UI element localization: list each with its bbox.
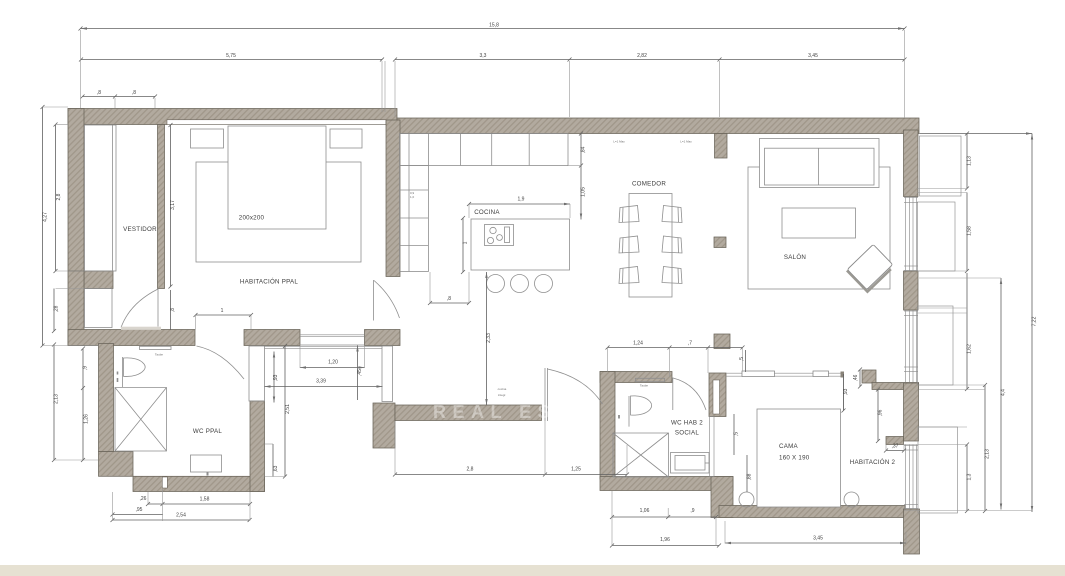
svg-text:2,82: 2,82 xyxy=(637,53,647,59)
svg-text:1,9: 1,9 xyxy=(518,197,525,203)
svg-text:2,8: 2,8 xyxy=(467,467,474,473)
svg-text:cocina: cocina xyxy=(498,387,507,391)
svg-text:,5: ,5 xyxy=(734,432,740,436)
svg-text:2,33: 2,33 xyxy=(486,333,492,343)
svg-text:,84: ,84 xyxy=(581,146,587,153)
svg-text:2,13: 2,13 xyxy=(54,394,60,404)
svg-text:L=1 Max: L=1 Max xyxy=(680,140,692,144)
svg-text:HABITACIÓN PPAL: HABITACIÓN PPAL xyxy=(240,279,298,286)
svg-text:7,22: 7,22 xyxy=(1032,316,1038,326)
svg-text:2,8: 2,8 xyxy=(56,193,62,200)
svg-text:4,27: 4,27 xyxy=(43,212,49,222)
svg-text:Taube: Taube xyxy=(155,353,164,357)
svg-text:,63: ,63 xyxy=(273,465,279,472)
svg-text:1,20: 1,20 xyxy=(328,360,338,366)
svg-text:VESTIDOR: VESTIDOR xyxy=(123,226,157,233)
svg-text:,26: ,26 xyxy=(140,496,147,502)
svg-text:,8: ,8 xyxy=(170,308,176,312)
svg-text:15,8: 15,8 xyxy=(489,23,499,29)
svg-text:,8: ,8 xyxy=(97,90,101,96)
svg-text:160 X 190: 160 X 190 xyxy=(779,455,810,462)
svg-text:,93: ,93 xyxy=(843,388,849,395)
svg-text:2,13: 2,13 xyxy=(985,449,991,459)
svg-text:4,4: 4,4 xyxy=(1001,389,1007,396)
svg-text:3,39: 3,39 xyxy=(316,379,326,385)
svg-text:,45: ,45 xyxy=(357,369,363,376)
svg-text:1,62: 1,62 xyxy=(967,344,973,354)
svg-text:REAL EST: REAL EST xyxy=(433,402,574,422)
svg-text:3,45: 3,45 xyxy=(813,536,823,542)
svg-text:3,45: 3,45 xyxy=(808,53,818,59)
svg-text:1,05: 1,05 xyxy=(581,187,587,197)
svg-text:1,26: 1,26 xyxy=(84,414,90,424)
svg-text:COCINA: COCINA xyxy=(474,209,500,216)
svg-text:5,75: 5,75 xyxy=(226,53,236,59)
svg-text:,96: ,96 xyxy=(878,409,884,416)
svg-text:1,13: 1,13 xyxy=(967,156,973,166)
svg-text:1,3: 1,3 xyxy=(967,473,973,480)
svg-text:COMEDOR: COMEDOR xyxy=(632,181,666,188)
svg-text:2,54: 2,54 xyxy=(176,513,186,519)
svg-text:,93: ,93 xyxy=(273,374,279,381)
svg-text:,8: ,8 xyxy=(132,90,136,96)
svg-text:,5: ,5 xyxy=(739,357,745,361)
svg-text:,88: ,88 xyxy=(747,473,753,480)
svg-text:1,58: 1,58 xyxy=(967,226,973,236)
svg-text:1,96: 1,96 xyxy=(660,537,670,543)
svg-text:,95: ,95 xyxy=(136,507,143,513)
svg-text:,9: ,9 xyxy=(690,508,694,514)
svg-text:2,51: 2,51 xyxy=(285,404,291,414)
svg-text:1: 1 xyxy=(463,241,469,244)
svg-text:WC PPAL: WC PPAL xyxy=(193,428,222,435)
svg-text:HABITACIÓN 2: HABITACIÓN 2 xyxy=(850,459,896,466)
svg-text:Taube: Taube xyxy=(640,384,649,388)
svg-text:200x200: 200x200 xyxy=(239,215,265,222)
svg-text:1: 1 xyxy=(221,308,224,314)
svg-text:1,0: 1,0 xyxy=(410,195,415,199)
svg-text:WC HAB 2: WC HAB 2 xyxy=(671,420,703,427)
svg-text:integr.: integr. xyxy=(498,393,506,397)
svg-text:3,3: 3,3 xyxy=(480,53,487,59)
svg-text:L=1 Max: L=1 Max xyxy=(613,140,625,144)
svg-text:1,06: 1,06 xyxy=(640,508,650,514)
svg-text:CAMA: CAMA xyxy=(779,443,798,450)
svg-text:,7: ,7 xyxy=(688,341,692,347)
svg-text:SOCIAL: SOCIAL xyxy=(675,430,700,437)
svg-text:,28: ,28 xyxy=(54,305,60,312)
svg-text:,46: ,46 xyxy=(853,374,859,381)
svg-text:SALÓN: SALÓN xyxy=(784,254,806,261)
svg-text:,9: ,9 xyxy=(83,366,89,370)
svg-text:1,25: 1,25 xyxy=(571,467,581,473)
svg-text:1,24: 1,24 xyxy=(633,341,643,347)
svg-text:,8: ,8 xyxy=(447,296,451,302)
svg-text:1,58: 1,58 xyxy=(200,497,210,503)
svg-text:3,17: 3,17 xyxy=(170,200,176,210)
svg-text:,37: ,37 xyxy=(892,444,899,450)
